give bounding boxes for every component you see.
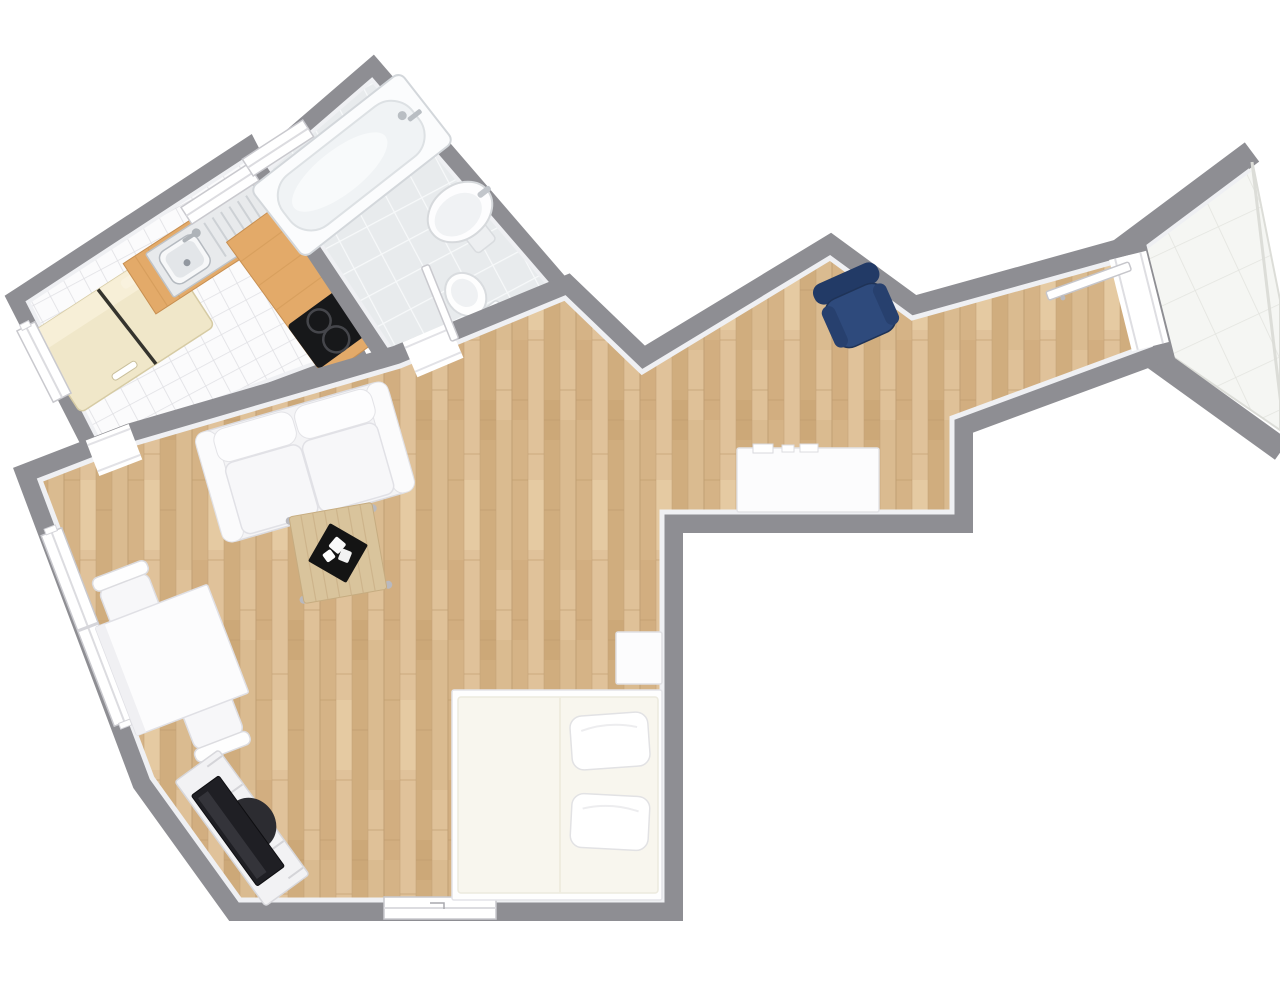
floor-plan-canvas [0, 0, 1280, 989]
pillow [569, 711, 651, 770]
desk-item [753, 444, 773, 453]
pillow [570, 793, 651, 851]
nightstand [616, 632, 662, 684]
double-bed [452, 690, 662, 900]
floor-plan-stage [0, 0, 1280, 989]
desk [737, 444, 879, 512]
desk-item [800, 444, 818, 452]
desk-item [782, 445, 794, 452]
